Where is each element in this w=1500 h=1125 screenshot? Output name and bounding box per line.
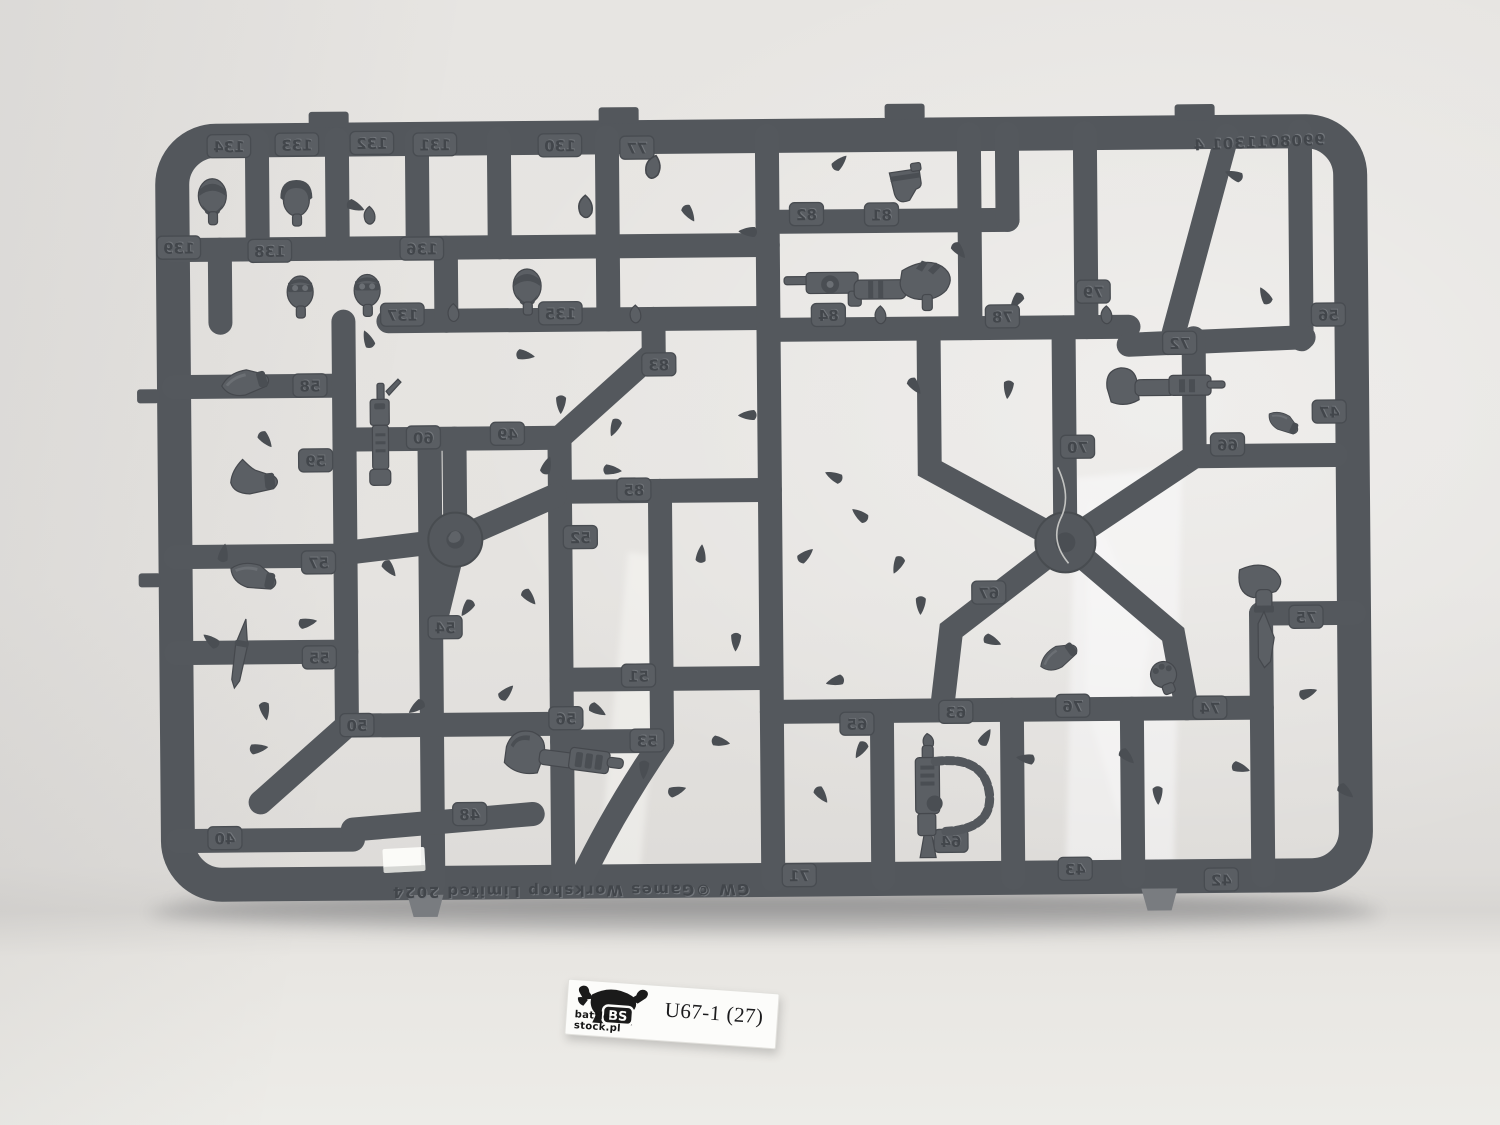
head-stub bbox=[875, 306, 886, 324]
part-number-plate: 135135 bbox=[539, 302, 583, 325]
part-number-plate: 4747 bbox=[1312, 400, 1346, 423]
label-logo-area: BS battle-stock.pl bbox=[572, 983, 661, 1037]
gate-stub bbox=[519, 587, 539, 608]
part-number-plate: 7575 bbox=[1289, 605, 1323, 628]
part-number: 71 bbox=[789, 867, 810, 885]
part-number: 134 bbox=[213, 138, 244, 156]
part-number-plate: 8383 bbox=[642, 353, 676, 376]
gate-stub bbox=[812, 785, 831, 806]
gate-stub bbox=[298, 616, 318, 630]
part-number-plate: 134134 bbox=[207, 134, 251, 157]
part-number: 139 bbox=[163, 239, 194, 257]
gate-stub bbox=[695, 544, 707, 563]
part-number-plate: 5252 bbox=[563, 525, 597, 548]
gate-stub bbox=[1231, 760, 1252, 775]
head-bearded bbox=[198, 179, 226, 225]
head-bandana-goggles bbox=[287, 276, 313, 318]
part-number: 52 bbox=[570, 529, 591, 547]
arm-bolt-pistol bbox=[784, 260, 951, 311]
part-number-plate: 6363 bbox=[939, 700, 973, 723]
part-number: 81 bbox=[871, 206, 892, 224]
head-helmeted bbox=[280, 180, 312, 226]
part-number-plate: 130130 bbox=[538, 134, 582, 157]
gate-stub bbox=[680, 203, 698, 224]
part-number-plate: 137137 bbox=[381, 303, 425, 326]
part-number: 58 bbox=[299, 377, 320, 395]
part-number: 42 bbox=[1211, 871, 1232, 889]
part-number: 131 bbox=[419, 136, 450, 154]
part-number: 83 bbox=[648, 356, 669, 374]
pistol-holster bbox=[888, 162, 925, 203]
acrylic-stand-foot bbox=[382, 847, 425, 873]
part-number-plate: 8282 bbox=[789, 202, 823, 225]
part-number-plate: 5656 bbox=[549, 707, 583, 730]
part-number: 65 bbox=[846, 716, 867, 734]
gate-stub bbox=[915, 596, 925, 615]
part-number-plate: 131131 bbox=[413, 133, 457, 156]
gate-stub bbox=[667, 783, 688, 798]
part-number-plate: 4848 bbox=[453, 802, 487, 825]
gate-stub bbox=[849, 505, 870, 524]
part-number-plate: 138138 bbox=[248, 239, 292, 262]
part-number: 74 bbox=[1199, 699, 1220, 717]
part-number-plate: 5151 bbox=[621, 664, 655, 687]
gate-stub bbox=[556, 395, 566, 414]
part-number: 79 bbox=[1083, 283, 1104, 301]
part-number-plate: 5757 bbox=[301, 551, 335, 574]
part-number-plate: 4949 bbox=[490, 422, 524, 445]
part-number: 67 bbox=[978, 584, 999, 602]
gate-stub bbox=[380, 558, 399, 579]
part-number-plate: 7979 bbox=[1076, 280, 1110, 303]
part-number: 51 bbox=[628, 667, 649, 685]
part-number: 84 bbox=[818, 307, 839, 325]
gate-stub bbox=[1002, 380, 1014, 400]
label-site-text: battle-stock.pl bbox=[574, 1009, 659, 1037]
part-number: 59 bbox=[305, 452, 326, 470]
part-number-plate: 5353 bbox=[630, 729, 664, 752]
part-number: 56 bbox=[555, 710, 576, 728]
part-number-plate: 5858 bbox=[293, 374, 327, 397]
part-number-plate: 5959 bbox=[299, 449, 333, 472]
part-number: 48 bbox=[459, 806, 480, 824]
part-number: 135 bbox=[545, 305, 576, 323]
gate-stub bbox=[360, 328, 377, 349]
part-number: 43 bbox=[1065, 861, 1086, 879]
part-number-plate: 7171 bbox=[782, 864, 816, 887]
part-number: 133 bbox=[281, 136, 312, 154]
hair-piece bbox=[579, 195, 593, 217]
gate-stub bbox=[606, 417, 622, 438]
gate-stub bbox=[256, 429, 275, 450]
part-number: 63 bbox=[945, 704, 966, 722]
part-number: 70 bbox=[1067, 439, 1088, 457]
sprue-photo: 1341341331331321321311311301307777139139… bbox=[0, 0, 1500, 1125]
gate-stub bbox=[587, 701, 608, 719]
part-number-plate: 5656 bbox=[1311, 303, 1345, 326]
injection-disc bbox=[428, 512, 482, 566]
part-number-plate: 7676 bbox=[1056, 694, 1090, 717]
part-number: 132 bbox=[356, 135, 387, 153]
svg-text:GW ©Games Workshop Limited 202: GW ©Games Workshop Limited 2024 bbox=[391, 880, 749, 901]
gate-stub bbox=[516, 349, 536, 362]
part-number: 72 bbox=[1169, 335, 1190, 353]
part-number-plate: 8484 bbox=[811, 303, 845, 326]
part-number: 47 bbox=[1319, 403, 1340, 421]
gate-stub bbox=[738, 410, 757, 420]
part-number: 66 bbox=[1217, 436, 1238, 454]
part-number: 85 bbox=[623, 482, 644, 500]
part-number: 54 bbox=[435, 619, 456, 637]
part-number: 57 bbox=[308, 554, 329, 572]
part-number: 50 bbox=[346, 717, 367, 735]
part-number-plate: 4242 bbox=[1204, 868, 1238, 891]
part-number: 78 bbox=[992, 308, 1013, 326]
gate-stub bbox=[795, 545, 816, 565]
gate-stub bbox=[497, 682, 517, 702]
product-photo-scene: 1341341331331321321311311301307777139139… bbox=[0, 0, 1500, 1125]
part-number: 55 bbox=[309, 649, 330, 667]
part-number-plate: 6565 bbox=[840, 712, 874, 735]
copyright-text: GW ©Games Workshop Limited 2024 GW ©Game… bbox=[391, 880, 750, 902]
gate-stub bbox=[711, 735, 731, 749]
head-stub bbox=[1101, 306, 1112, 324]
part-number-plate: 8181 bbox=[864, 203, 898, 226]
gate-stub bbox=[982, 633, 1003, 650]
part-number-plate: 7070 bbox=[1060, 435, 1094, 458]
arm-stub-gun bbox=[1107, 367, 1226, 405]
part-number-plate: 4343 bbox=[1058, 857, 1092, 880]
part-number: 49 bbox=[497, 426, 518, 444]
part-number-plate: 6666 bbox=[1210, 433, 1244, 456]
part-number-plate: 6767 bbox=[972, 581, 1006, 604]
gate-stub bbox=[889, 555, 906, 576]
part-number-plate: 133133 bbox=[275, 133, 319, 156]
part-number: 53 bbox=[637, 732, 658, 750]
gate-stub bbox=[830, 152, 850, 172]
part-number: 130 bbox=[544, 137, 575, 155]
gate-stub bbox=[458, 598, 477, 619]
arm-small bbox=[1265, 408, 1302, 437]
gate-stub bbox=[823, 468, 844, 485]
gate-stub bbox=[258, 701, 271, 721]
part-number-plate: 5454 bbox=[428, 616, 462, 639]
part-number: 75 bbox=[1296, 609, 1317, 627]
part-number-plate: 5050 bbox=[340, 713, 374, 736]
gate-stub bbox=[1298, 685, 1319, 701]
gate-stub bbox=[852, 740, 870, 761]
part-number: 138 bbox=[254, 243, 285, 261]
part-number-plate: 5555 bbox=[302, 646, 336, 669]
part-number-plate: 8585 bbox=[617, 478, 651, 501]
arm-hooded bbox=[229, 456, 279, 495]
gate-stub bbox=[977, 727, 995, 748]
part-number-plate: 7474 bbox=[1193, 696, 1227, 719]
gate-stub bbox=[825, 674, 846, 689]
part-number: 60 bbox=[413, 429, 434, 447]
part-number-plate: 139139 bbox=[157, 236, 201, 259]
part-number-plate: 132132 bbox=[350, 131, 394, 154]
part-number: 137 bbox=[387, 306, 418, 324]
part-number-plate: 7272 bbox=[1163, 331, 1197, 354]
part-number-plate: 7777 bbox=[620, 136, 654, 159]
part-number-plate: 7878 bbox=[985, 305, 1019, 328]
head-goggles bbox=[354, 274, 380, 316]
part-number-plate: 4040 bbox=[208, 827, 242, 850]
part-number: 136 bbox=[406, 240, 437, 258]
part-number: 56 bbox=[1318, 306, 1339, 324]
part-number-plate: 136136 bbox=[400, 237, 444, 260]
gate-stub bbox=[249, 742, 269, 755]
head-stub bbox=[364, 206, 375, 224]
gate-stub bbox=[603, 464, 623, 476]
gate-stub bbox=[730, 633, 741, 652]
gate-stub bbox=[1256, 285, 1274, 306]
part-number: 77 bbox=[626, 139, 647, 157]
part-number-plate: 6060 bbox=[406, 426, 440, 449]
part-number: 40 bbox=[214, 830, 235, 848]
label-code-text: U67-1 (27) bbox=[658, 997, 770, 1038]
part-number: 76 bbox=[1062, 698, 1083, 716]
part-number: 82 bbox=[796, 206, 817, 224]
